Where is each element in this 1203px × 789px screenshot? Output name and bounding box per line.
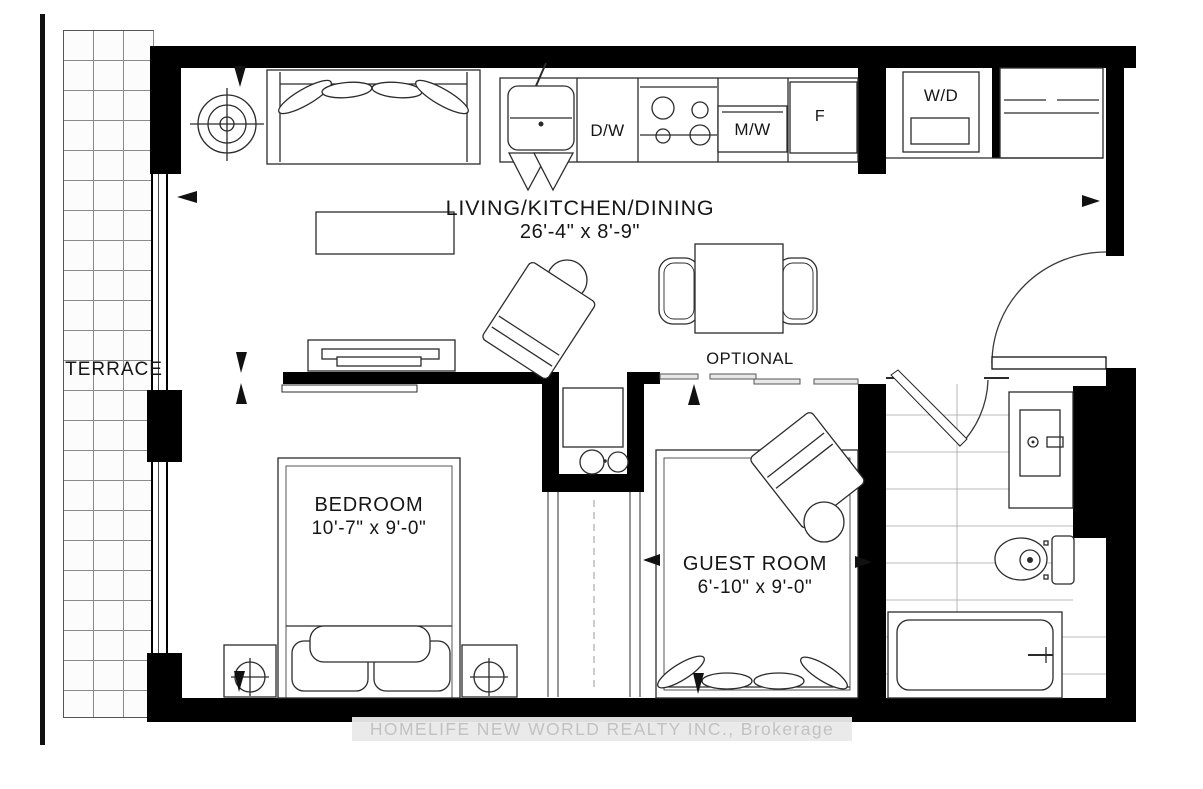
- marker-arrow: [234, 66, 246, 87]
- vanity-sink: [1009, 392, 1073, 508]
- marker-arrow: [688, 384, 700, 405]
- kitchen-sink: [508, 63, 574, 190]
- toilet-icon: [995, 536, 1074, 584]
- floor-plan: LIVING/KITCHEN/DINING 26'-4" x 8'-9" BED…: [0, 0, 1203, 789]
- guest-side-table: [804, 502, 844, 542]
- bedroom-label: BEDROOM: [269, 494, 469, 517]
- sofa: [267, 70, 480, 164]
- living-room-label: LIVING/KITCHEN/DINING: [430, 196, 730, 221]
- living-room-dims: 26'-4" x 8'-9": [430, 221, 730, 244]
- microwave-label: M/W: [720, 120, 785, 140]
- marker-arrow: [236, 352, 247, 373]
- washer-dryer-box: [886, 72, 1103, 158]
- nightstand-right: [462, 645, 517, 697]
- marker-arrow: [236, 383, 247, 404]
- dishwasher-label: D/W: [580, 121, 635, 141]
- nightstand-left: [224, 645, 276, 697]
- marker-arrow: [1082, 195, 1100, 207]
- linen-closet: [1000, 68, 1103, 158]
- bathtub: [888, 612, 1062, 698]
- bathroom-door: [886, 370, 1009, 446]
- marker-arrow: [177, 191, 197, 203]
- dining-set: [659, 244, 817, 333]
- guest-room-label: GUEST ROOM: [655, 553, 855, 576]
- guest-room-dims: 6'-10" x 9'-0": [655, 577, 855, 599]
- washer-dryer-label: W/D: [911, 86, 971, 106]
- plan-linework: [0, 0, 1203, 789]
- optional-wall: [660, 374, 858, 384]
- ceiling-fixture-icon: [190, 88, 264, 161]
- closet-between-rooms: [548, 492, 640, 697]
- optional-wall-label: OPTIONAL: [704, 350, 796, 369]
- bedroom-dims: 10'-7" x 9'-0": [269, 518, 469, 540]
- brokerage-watermark: HOMELIFE NEW WORLD REALTY INC., Brokerag…: [352, 717, 852, 741]
- marker-arrow: [855, 556, 872, 568]
- entry-door: [992, 252, 1106, 369]
- stove-icon: [640, 87, 717, 145]
- nook-fixture: [563, 388, 628, 474]
- tv-console: [282, 340, 455, 392]
- terrace-label: TERRACE: [64, 359, 164, 381]
- fridge-label: F: [805, 108, 835, 126]
